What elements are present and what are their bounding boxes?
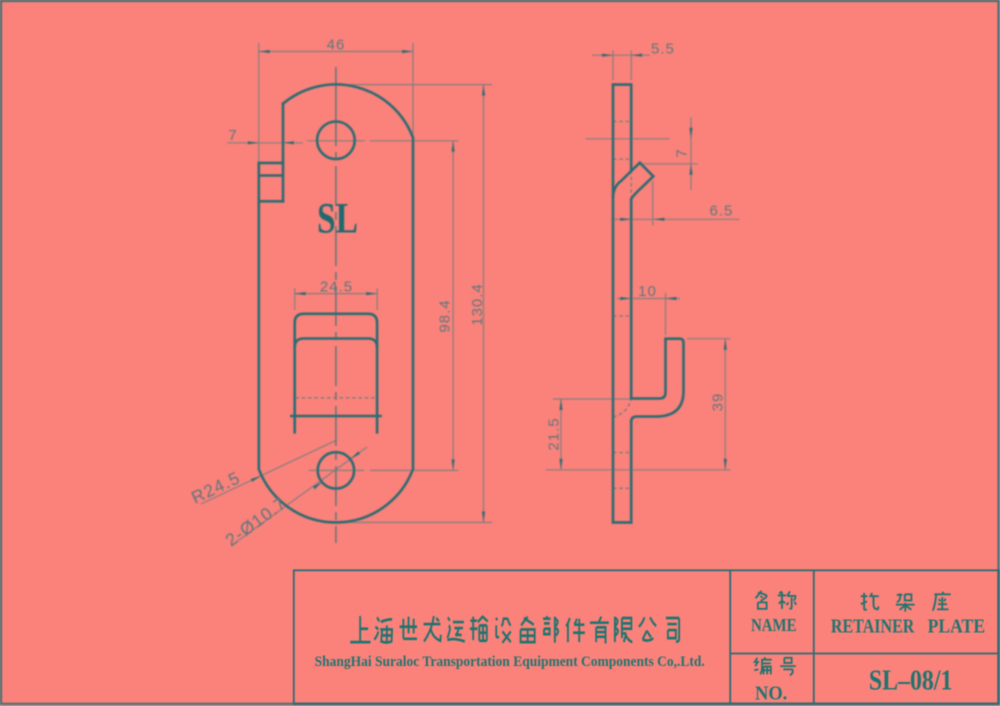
svg-text:RETAINER: RETAINER [831, 615, 915, 637]
svg-text:21.5: 21.5 [546, 417, 563, 450]
svg-text:39: 39 [710, 393, 727, 412]
svg-text:PLATE: PLATE [928, 615, 986, 637]
svg-text:7: 7 [228, 127, 237, 144]
svg-text:NO.: NO. [755, 683, 787, 705]
svg-text:5.5: 5.5 [651, 41, 675, 58]
svg-text:24.5: 24.5 [320, 279, 353, 296]
svg-text:NAME: NAME [751, 615, 797, 635]
svg-text:SL–08/1: SL–08/1 [869, 665, 953, 696]
svg-text:98.4: 98.4 [437, 299, 454, 332]
svg-text:10: 10 [638, 283, 657, 300]
svg-text:6.5: 6.5 [710, 203, 734, 220]
svg-text:7: 7 [674, 148, 691, 157]
svg-text:SL: SL [317, 196, 358, 243]
svg-text:ShangHai Suraloc Transportatio: ShangHai Suraloc Transportation Equipmen… [315, 654, 705, 670]
svg-text:46: 46 [327, 37, 346, 54]
svg-text:130.4: 130.4 [469, 283, 486, 326]
